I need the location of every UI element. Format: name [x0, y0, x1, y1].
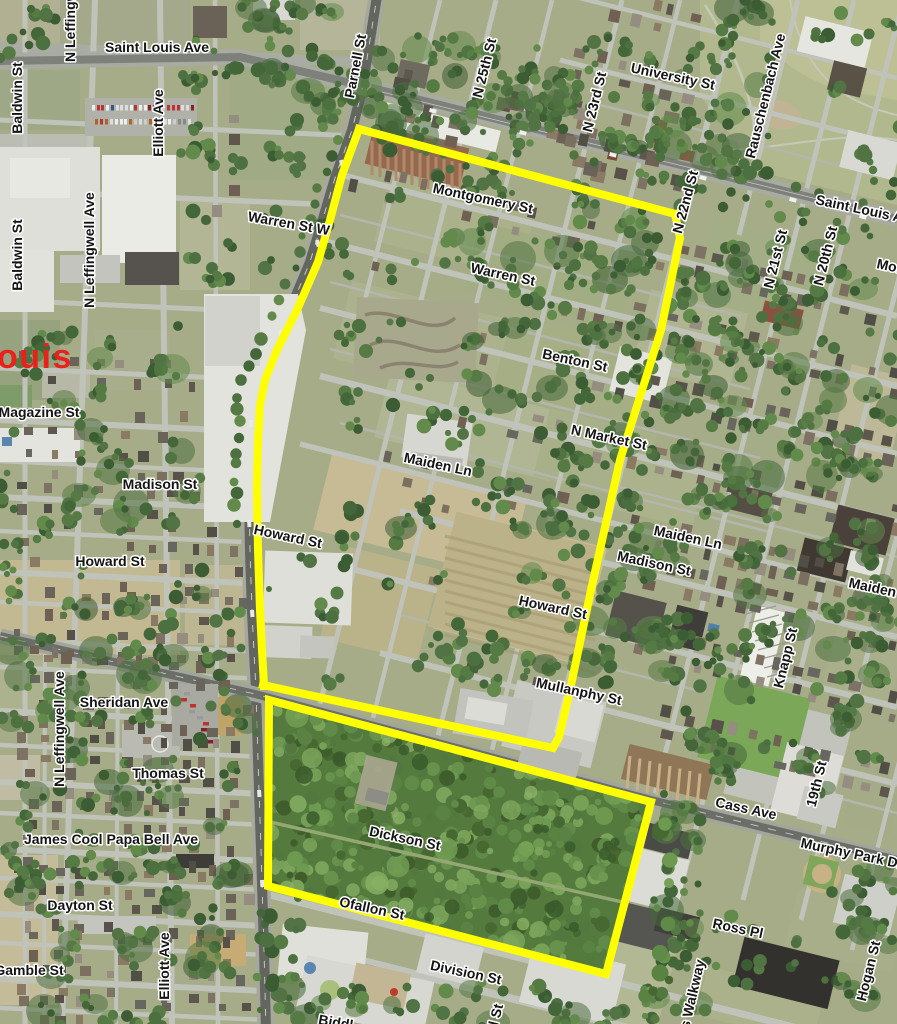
svg-text:Magazine St: Magazine St	[0, 404, 80, 420]
svg-text:Elliott Ave: Elliott Ave	[156, 932, 172, 1000]
svg-text:James Cool Papa Bell Ave: James Cool Papa Bell Ave	[24, 831, 198, 847]
svg-text:Sheridan Ave: Sheridan Ave	[80, 694, 169, 710]
svg-text:Madison St: Madison St	[123, 476, 198, 492]
svg-text:Saint Louis Ave: Saint Louis Ave	[105, 39, 209, 55]
svg-text:Thomas St: Thomas St	[132, 765, 204, 781]
svg-text:Baldwin St: Baldwin St	[9, 219, 25, 291]
svg-text:Dayton St: Dayton St	[47, 897, 113, 913]
svg-text:N Leffingwell Ave: N Leffingwell Ave	[81, 192, 97, 308]
svg-text:Elliott Ave: Elliott Ave	[150, 89, 166, 157]
svg-text:Howard St: Howard St	[75, 553, 145, 569]
svg-text:ouis: ouis	[0, 338, 73, 376]
svg-text:Baldwin St: Baldwin St	[9, 62, 25, 134]
svg-text:N Leffingwell Ave: N Leffingwell Ave	[51, 671, 67, 787]
svg-text:N Leffingwell Ave: N Leffingwell Ave	[62, 0, 78, 62]
svg-text:Gamble St: Gamble St	[0, 962, 64, 978]
